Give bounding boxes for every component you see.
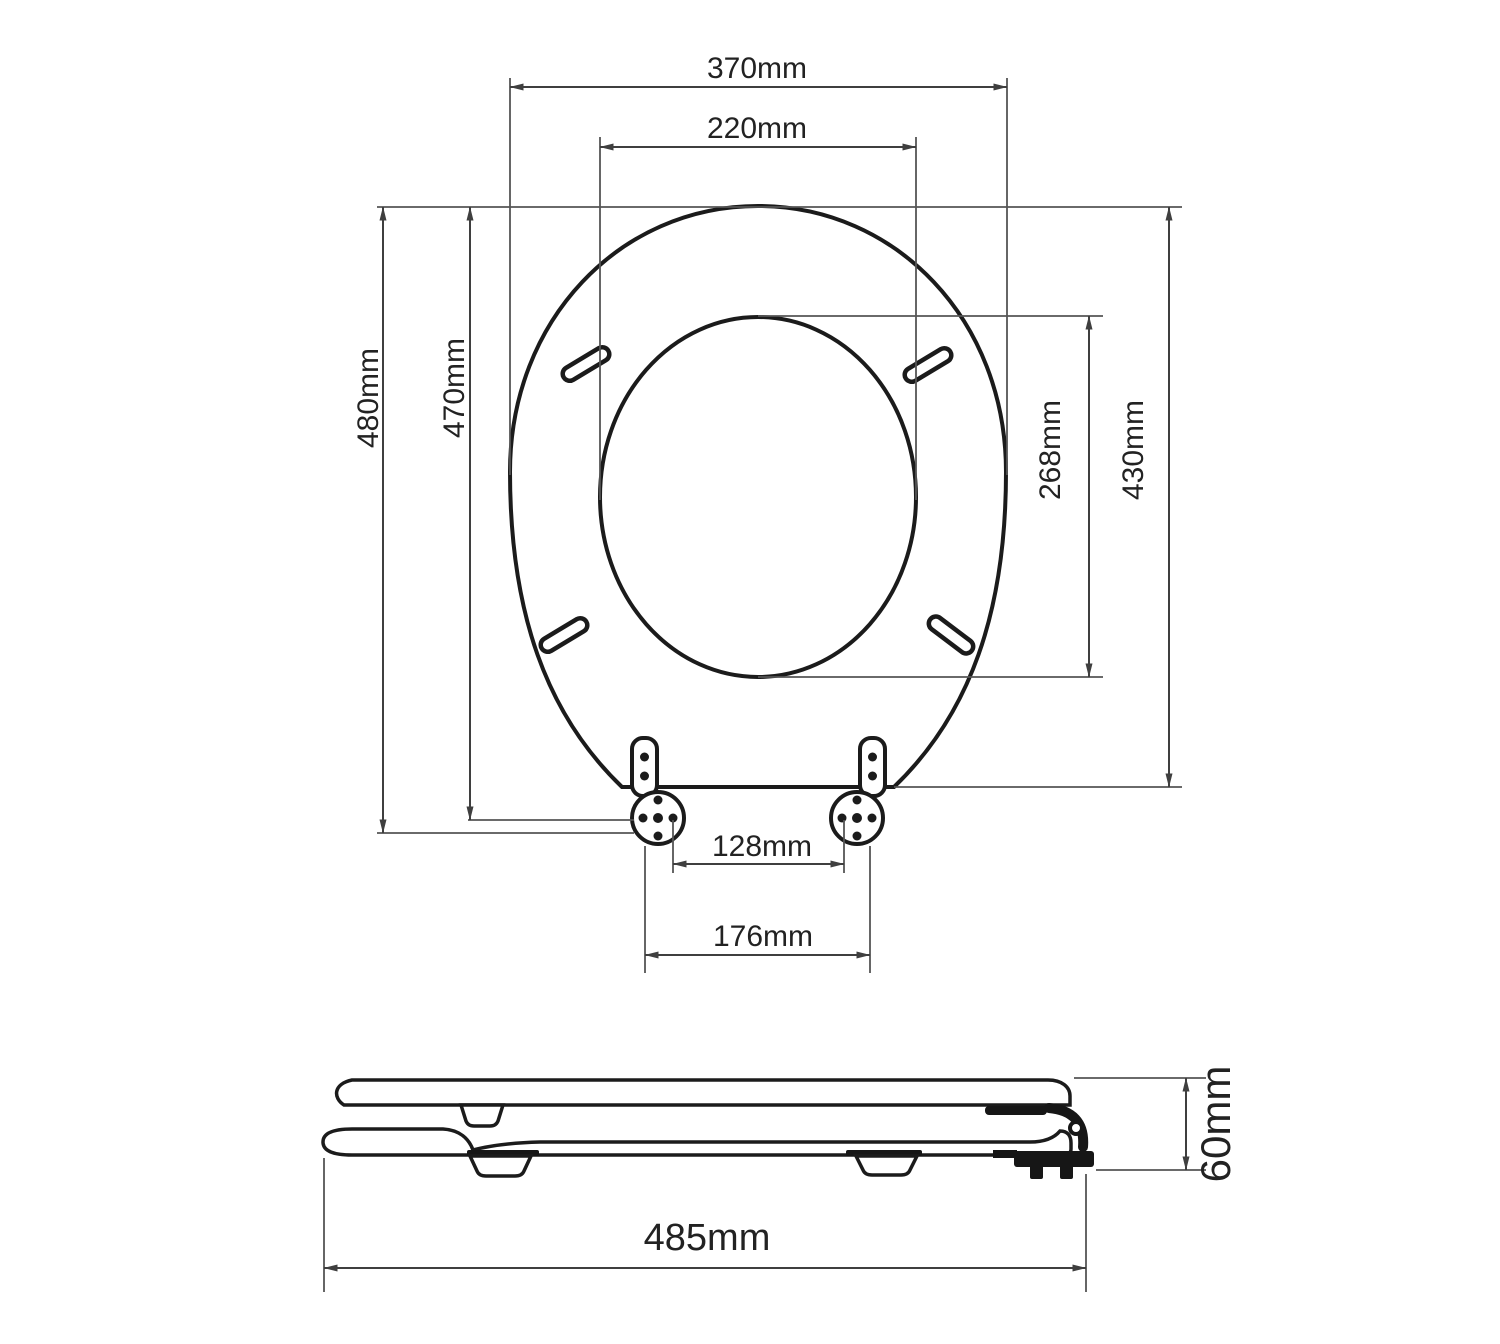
hinge-bolt-hole bbox=[653, 813, 663, 823]
side-foot-right bbox=[856, 1156, 917, 1175]
side-view bbox=[323, 1080, 1094, 1179]
dim-label-side-overall-length: 485mm bbox=[644, 1217, 771, 1259]
dim-label-overall-length: 480mm bbox=[352, 348, 385, 448]
dim-label-hinge-bolt-spacing: 128mm bbox=[712, 830, 812, 863]
side-hinge-plate bbox=[993, 1150, 1017, 1158]
hinge-tab-hole bbox=[868, 772, 877, 781]
side-hinge-base bbox=[1014, 1151, 1094, 1167]
top-view bbox=[510, 206, 1006, 844]
diagram-canvas: 370mm 220mm 480mm 470mm 268mm 430mm 128m… bbox=[0, 0, 1500, 1344]
dim-label-inner-cutout-length: 268mm bbox=[1034, 400, 1067, 500]
hinge-bolt-hole bbox=[654, 796, 663, 805]
hinge-bolt-hole bbox=[853, 832, 862, 841]
hinge-bolt-hole bbox=[868, 814, 877, 823]
dim-label-length-to-hinge: 470mm bbox=[438, 338, 471, 438]
seat-inner-ring bbox=[600, 317, 916, 677]
hinge-bolt-hole bbox=[853, 796, 862, 805]
side-lid-profile bbox=[337, 1080, 1070, 1105]
dimension-diagram: 370mm 220mm 480mm 470mm 268mm 430mm 128m… bbox=[0, 0, 1500, 1344]
hinge-tab-hole bbox=[640, 753, 649, 762]
dim-label-hinge-outer-spacing: 176mm bbox=[713, 920, 813, 953]
side-hinge-pin bbox=[1070, 1122, 1082, 1134]
hinge-tab-hole bbox=[868, 753, 877, 762]
side-hinge-bolt bbox=[1060, 1165, 1073, 1179]
side-hinge-bolt bbox=[1030, 1165, 1043, 1179]
dim-label-outer-width: 370mm bbox=[707, 52, 807, 85]
hinge-bolt-hole bbox=[838, 814, 847, 823]
side-hinge-lid-strip bbox=[985, 1106, 1047, 1115]
hinge-bolt-hole bbox=[654, 832, 663, 841]
hinge-tab-right bbox=[860, 738, 885, 796]
hinge-bolt-hole bbox=[639, 814, 648, 823]
dim-label-inner-width: 220mm bbox=[707, 112, 807, 145]
side-seat-profile bbox=[323, 1129, 1071, 1155]
hinge-tab-left bbox=[632, 738, 657, 796]
dim-label-seat-ring-length: 430mm bbox=[1117, 400, 1150, 500]
side-foot-left bbox=[470, 1156, 531, 1176]
side-lid-bumper bbox=[461, 1105, 503, 1126]
hinge-tab-hole bbox=[640, 772, 649, 781]
dim-label-side-height: 60mm bbox=[1192, 1066, 1239, 1183]
hinge-bolt-hole bbox=[852, 813, 862, 823]
